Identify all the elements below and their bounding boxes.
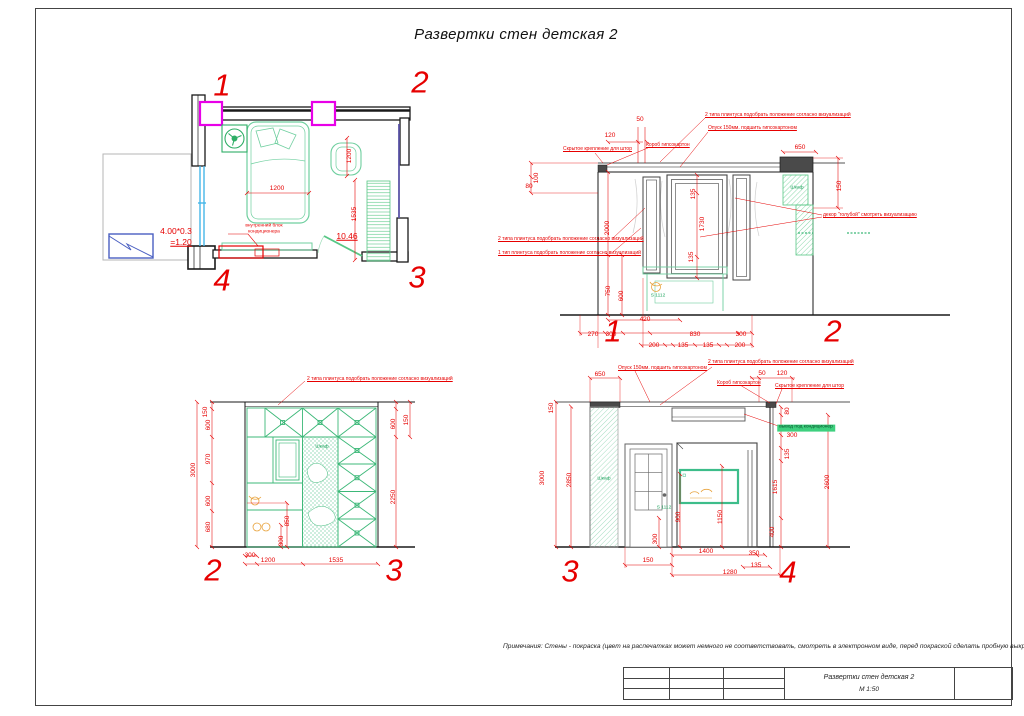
dim: 150 (837, 181, 844, 192)
titleblock-scale: М 1:50 (859, 687, 879, 694)
dim: 120 (777, 371, 788, 378)
dim: 900 (676, 512, 683, 523)
dim: 135 (678, 343, 689, 350)
dim: 100 (534, 173, 541, 184)
titleblock: Развертки стен детская 2 М 1:50 (623, 667, 1013, 700)
titleblock-divider (954, 668, 955, 699)
dim: 120 (605, 133, 616, 140)
label-desk-code-12: S 1112 (651, 295, 666, 300)
dim: 2600 (825, 475, 832, 489)
dim: 150 (643, 558, 654, 565)
drawing-sheet: Развертки стен детская 2 (0, 0, 1024, 716)
dim: 1400 (699, 549, 713, 556)
dim: 1730 (700, 217, 707, 231)
dim: 135 (689, 252, 696, 263)
dim: 135 (785, 449, 792, 460)
dim: 50 (758, 371, 765, 378)
label-plinth2-top-23: 2 типа плинтуса подобрать положение согл… (307, 377, 453, 382)
dim: 300 (245, 553, 256, 560)
titleblock-drawing-name: Развертки стен детская 2 (824, 674, 915, 681)
pilaster-right (733, 175, 750, 280)
plan-marker-3: 3 (408, 262, 425, 293)
dim: 2000 (605, 221, 612, 235)
dim: 680 (206, 522, 213, 533)
plan-marker-1: 1 (213, 70, 230, 101)
window-symbol-icon (109, 234, 153, 258)
dim: 300 (787, 433, 798, 440)
plan-marker-2: 2 (411, 67, 428, 98)
elev23-marker-left: 2 (204, 555, 221, 586)
dim-chair: 1200 (347, 149, 354, 163)
pin-board-34 (680, 470, 738, 503)
label-plinth2-12: 2 типа плинтуса подобрать положение согл… (498, 237, 644, 242)
label-drop-12: Опуск 150мм. подшить гипсокартоном (708, 126, 797, 131)
titleblock-divider (723, 668, 724, 699)
sheet-note: Примечания: Стены - покраска (цвет на ра… (503, 644, 1024, 651)
elev12-marker-left: 1 (604, 316, 621, 347)
elev12-marker-right: 2 (824, 316, 841, 347)
ceiling-12 (598, 157, 845, 172)
dim: 1615 (773, 480, 780, 494)
dim: 830 (690, 332, 701, 339)
page-title: Развертки стен детская 2 (414, 27, 618, 42)
titleblock-divider (784, 668, 785, 699)
titleblock-divider (669, 668, 670, 699)
dim: 135 (691, 189, 698, 200)
dim: 300 (736, 332, 747, 339)
label-wardrobe-23: Шкаф (315, 446, 328, 451)
label-plinth2-top-34: 2 типа плинтуса подобрать положение согл… (708, 360, 854, 365)
dim: 600 (206, 496, 213, 507)
elevation-1-2-drawing (495, 105, 955, 355)
dim: 300 (279, 536, 286, 547)
dim: 600 (619, 291, 626, 302)
window-formula: 4.00*0.3 (160, 227, 192, 236)
dim: 3000 (191, 463, 198, 477)
wardrobe-plan-hatch (367, 181, 390, 261)
ac-label-line2: кондиционера (248, 231, 280, 236)
wardrobe-hatch-23 (303, 437, 339, 547)
dim: 135 (703, 343, 714, 350)
label-desk-code-34: S 1112 (657, 507, 672, 512)
label-gkl-box-34: Короб гипсокартон (717, 381, 761, 386)
titleblock-divider (624, 678, 784, 679)
dim: 2850 (567, 473, 574, 487)
cornice-34 (672, 408, 745, 421)
dim: 1280 (723, 570, 737, 577)
label-curtain-12: Скрытое крепление для штор (563, 147, 632, 152)
floor-plan-drawing (100, 60, 445, 305)
dim: 150 (203, 407, 210, 418)
label-ac-outlet-34: вывод под кондиционер (777, 425, 835, 432)
elev34-marker-left: 3 (561, 556, 578, 587)
dim: 150 (404, 415, 411, 426)
label-gkl-box-12: Короб гипсокартон (646, 143, 690, 148)
dim: 650 (795, 145, 806, 152)
dim: 50 (636, 117, 643, 124)
dim: 80 (785, 407, 792, 414)
label-plinth1-12: 1 тип плинтуса подобрать положение согла… (498, 251, 641, 256)
dim: 420 (640, 317, 651, 324)
dim: 600 (391, 419, 398, 430)
label-wardrobe-12: Шкаф (790, 187, 803, 192)
plan-marker-4: 4 (213, 265, 230, 296)
dim: 650 (595, 372, 606, 379)
dim: 600 (206, 420, 213, 431)
dim: 1535 (329, 558, 343, 565)
dim-wardrobe: 1535 (352, 207, 359, 221)
dim: 150 (549, 403, 556, 414)
dim: 200 (649, 343, 660, 350)
dim: 750 (606, 286, 613, 297)
titleblock-divider (624, 688, 784, 689)
dim: 270 (588, 332, 599, 339)
label-decor-12: декор "голубой" смотреть визуализацию (823, 213, 917, 218)
dim: 850 (285, 516, 292, 527)
dim: 300 (653, 534, 660, 545)
window-result: =1.20 (170, 238, 192, 247)
elevation-3-4-drawing (540, 358, 870, 605)
desk-elev12 (643, 267, 727, 311)
dim: 350 (749, 551, 760, 558)
dim: 970 (206, 454, 213, 465)
elev34-marker-right: 4 (779, 557, 796, 588)
dim: 2250 (391, 490, 398, 504)
bed (247, 122, 309, 223)
plan-window-line (198, 166, 206, 246)
ac-fan-icon (222, 125, 247, 152)
dim: 200 (735, 343, 746, 350)
label-curtain-34: Скрытое крепление для штор (775, 384, 844, 389)
label-wardrobe-34: Шкаф (597, 478, 610, 483)
elev23-marker-right: 3 (385, 555, 402, 586)
label-plinth2-top-12: 2 типа плинтуса подобрать положение согл… (705, 113, 851, 118)
dim: 1150 (718, 510, 725, 524)
dim-bed: 1200 (270, 186, 284, 193)
room-area: 10.46 (336, 232, 357, 241)
dim: 1200 (261, 558, 275, 565)
label-drop-34: Опуск 150мм. подшить гипсокартоном (618, 366, 707, 371)
chairs-23 (249, 496, 270, 531)
dim: 3000 (540, 471, 547, 485)
door-34 (625, 444, 672, 547)
dim: 400 (770, 527, 777, 538)
pilaster-left (643, 177, 660, 273)
dim: 135 (751, 563, 762, 570)
dim: 80 (525, 184, 532, 191)
